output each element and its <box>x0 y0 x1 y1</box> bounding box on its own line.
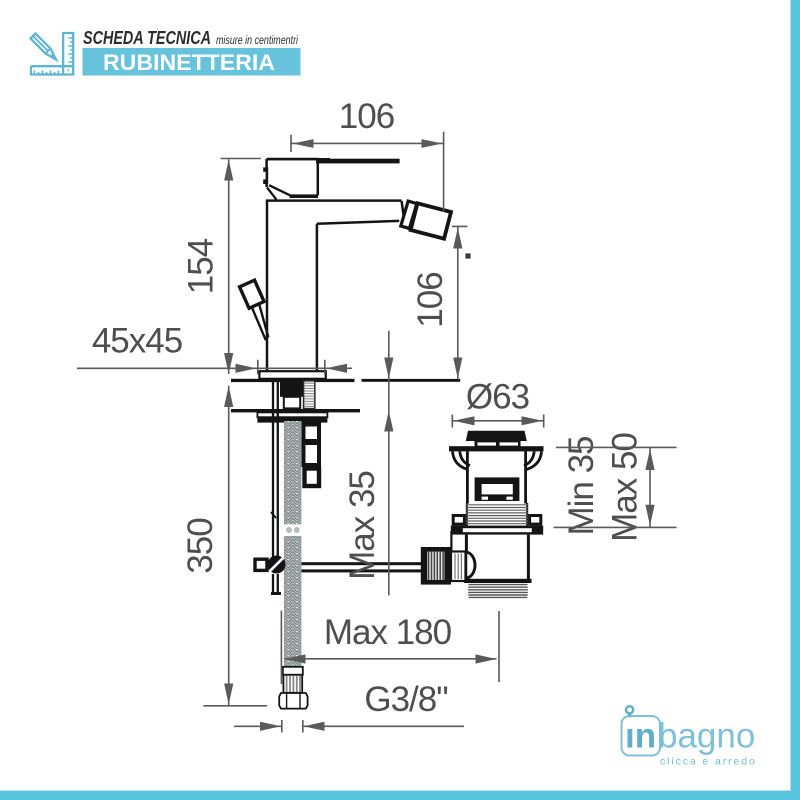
svg-text:ın: ın <box>625 717 656 756</box>
svg-text:Ø63: Ø63 <box>466 378 529 417</box>
svg-text:misure in centimentri: misure in centimentri <box>216 33 298 47</box>
svg-text:Min 35: Min 35 <box>562 436 601 535</box>
svg-text:106: 106 <box>339 97 394 136</box>
svg-text:clicca e arredo: clicca e arredo <box>660 756 757 768</box>
svg-text:RUBINETTERIA: RUBINETTERIA <box>103 50 275 75</box>
svg-text:Max 35: Max 35 <box>343 471 382 580</box>
svg-text:154: 154 <box>182 238 221 294</box>
svg-text:G3/8": G3/8" <box>364 680 447 719</box>
svg-text:Max 50: Max 50 <box>606 433 645 542</box>
svg-text:Max 180: Max 180 <box>324 613 452 652</box>
svg-text:106: 106 <box>411 272 450 327</box>
svg-text:350: 350 <box>181 518 220 574</box>
svg-text:bagno: bagno <box>658 717 755 756</box>
svg-text:45x45: 45x45 <box>92 322 182 361</box>
svg-text:SCHEDA TECNICA: SCHEDA TECNICA <box>83 27 211 48</box>
